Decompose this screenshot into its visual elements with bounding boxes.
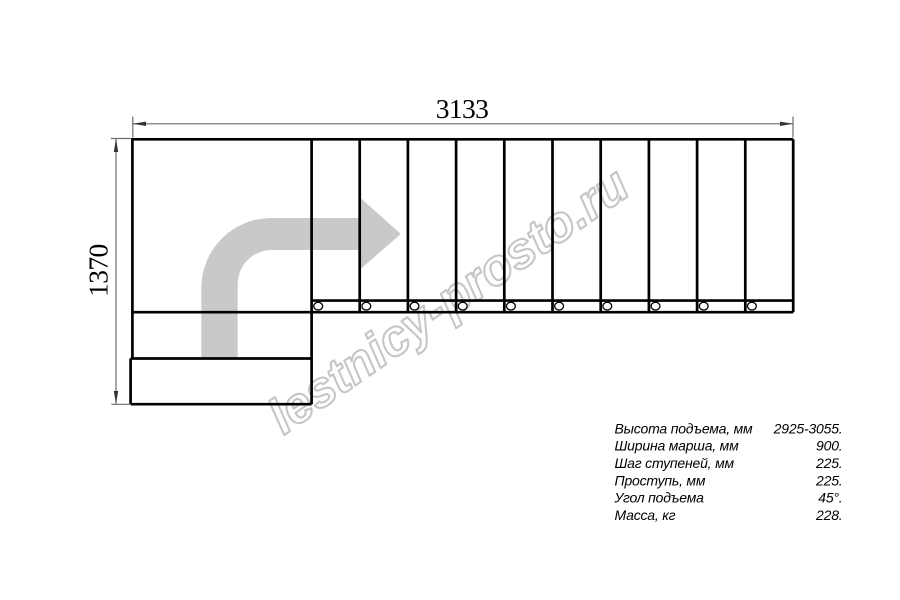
svg-text:Шаг ступеней, мм: Шаг ступеней, мм: [615, 455, 735, 471]
svg-text:Масса, кг: Масса, кг: [615, 507, 676, 523]
svg-text:1370: 1370: [83, 244, 114, 297]
svg-text:225.: 225.: [815, 472, 842, 488]
svg-text:900.: 900.: [816, 438, 842, 454]
svg-text:Угол подъема: Угол подъема: [614, 490, 705, 506]
svg-text:3133: 3133: [436, 93, 489, 124]
svg-text:Ширина марша, мм: Ширина марша, мм: [615, 438, 740, 454]
svg-text:228.: 228.: [815, 507, 842, 523]
svg-text:Высота подъема, мм: Высота подъема, мм: [615, 420, 754, 436]
svg-text:Проступь, мм: Проступь, мм: [615, 472, 706, 488]
svg-text:45°.: 45°.: [818, 490, 842, 506]
svg-text:2925-3055.: 2925-3055.: [773, 420, 843, 436]
svg-text:225.: 225.: [815, 455, 842, 471]
